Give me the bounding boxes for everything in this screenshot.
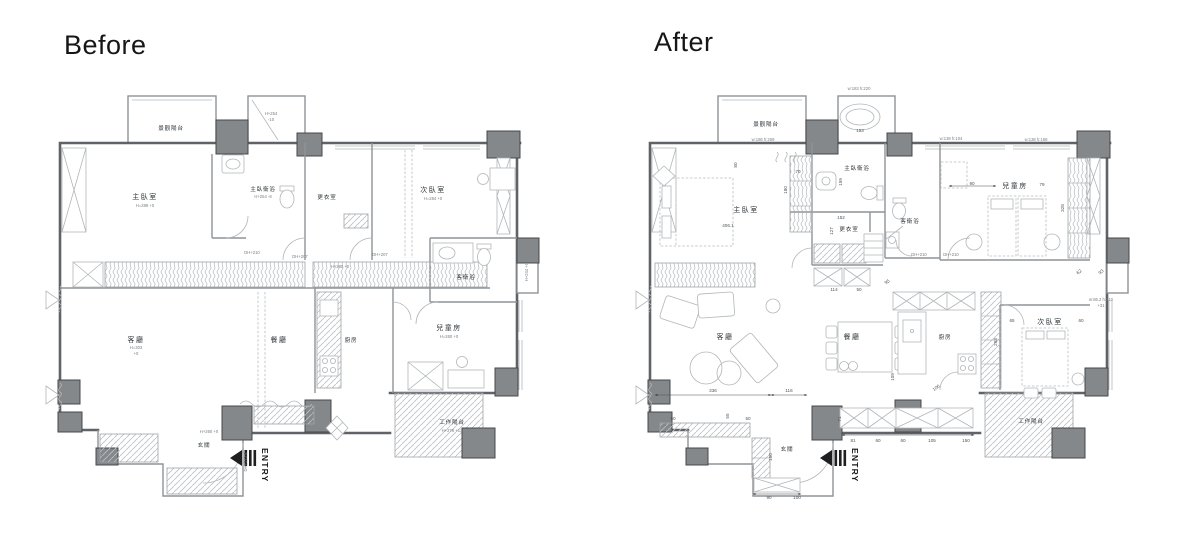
room-note: -10 <box>268 117 275 122</box>
window-note: +31 <box>1097 303 1105 308</box>
dim: 159 <box>838 178 843 186</box>
dressing-cabinets <box>814 234 883 263</box>
room-label-master-bath: 主臥衛浴 <box>844 164 870 172</box>
walkway-floor <box>254 406 314 424</box>
wardrobe-icon <box>408 362 443 390</box>
door-height-note: DH+213.5 <box>243 452 248 472</box>
floor-plan-before: 景觀陽台 主臥室 H=289 +0 主臥衛浴 H+254 -8 H+254 -1… <box>46 96 539 496</box>
dim: 50 <box>745 416 751 421</box>
dim: 50 <box>670 416 676 421</box>
room-label-dining: 餐廳 <box>844 332 861 341</box>
door-height-note: DH+210 <box>943 252 959 257</box>
room-label-work-balcony: 工作陽台 <box>439 418 465 426</box>
door-height-note: DH+207 <box>372 252 388 257</box>
dim: 55 <box>725 413 730 419</box>
room-label-work-balcony: 工作陽台 <box>1018 417 1044 425</box>
dim: 50 <box>856 287 862 292</box>
dim: 60 <box>1078 318 1084 323</box>
room-note: +0 <box>134 351 139 356</box>
dim: 62 <box>1075 268 1082 275</box>
room-note: H+260 +0 <box>200 429 219 434</box>
bathtub-icon <box>840 104 880 130</box>
room-label-master-bath: 主臥衛浴 <box>250 185 276 193</box>
chair-icon <box>1042 388 1056 398</box>
tv-cabinet <box>660 423 750 437</box>
dresser-icon <box>344 214 368 228</box>
entry-cabinet-row <box>840 408 973 428</box>
dim: 79 <box>1039 182 1045 187</box>
window-note: w:183 h:220 <box>848 86 871 91</box>
toilet-icon <box>477 244 491 266</box>
bed-icon <box>1022 328 1068 386</box>
room-label-guest-bath: 客衛浴 <box>456 273 475 281</box>
dim: 100 <box>793 495 801 500</box>
dim: 70 <box>795 169 801 174</box>
room-label-view-balcony: 景觀陽台 <box>158 124 184 132</box>
dim: 93 <box>1097 268 1104 275</box>
room-label-living: 客廳 <box>717 332 734 341</box>
toilet-icon <box>861 186 883 200</box>
bed-icon <box>988 196 1016 256</box>
rug-icon <box>690 352 722 384</box>
room-label-dressing: 更衣室 <box>839 225 858 233</box>
door-height-note: DH+207 <box>292 254 308 259</box>
stool-icon <box>966 234 982 250</box>
sink-icon <box>816 172 836 190</box>
wardrobe-row <box>655 263 755 287</box>
sink-icon <box>222 155 244 173</box>
room-label-foyer: 玄關 <box>781 445 794 453</box>
dim: 153 <box>856 128 864 133</box>
room-label-dining: 餐廳 <box>271 335 288 344</box>
dining-table-icon <box>826 322 906 372</box>
kitchen-island <box>898 312 926 374</box>
dim: 150 <box>768 453 773 461</box>
vanity-icon <box>433 243 473 263</box>
room-note: H+280 +0 <box>331 264 350 269</box>
toilet-icon <box>280 186 294 208</box>
dim: 152 <box>837 215 845 220</box>
desk-icon <box>941 162 967 188</box>
room-note: H+254 -8 <box>254 194 272 199</box>
desk-icon <box>448 357 484 389</box>
room-note: H=284 +0 <box>424 196 443 201</box>
room-note: H+244 +0 <box>524 262 529 281</box>
foyer-floor <box>167 468 237 494</box>
room-label-view-balcony: 景觀陽台 <box>753 120 779 128</box>
window-note: w:86.2 h:210 <box>1089 297 1114 302</box>
dim: 81 <box>850 438 856 443</box>
room-label-kids: 兒童房 <box>1002 181 1028 190</box>
dim: 406.1 <box>722 223 734 228</box>
room-label-living: 客廳 <box>128 335 145 344</box>
page: Before After <box>0 0 1200 544</box>
room-note: H+278 +13 <box>442 428 463 433</box>
rug-icon <box>717 361 741 385</box>
window-note: w:138 h:168 <box>1025 137 1048 142</box>
window-note: w:138 h:104 <box>940 136 963 141</box>
dim: 106 <box>932 383 942 392</box>
stool-icon <box>1072 373 1084 385</box>
wardrobe-icon <box>790 156 812 232</box>
dim: 293 <box>993 338 998 346</box>
dim: 127 <box>829 227 834 235</box>
dim: 65 <box>1009 318 1015 323</box>
floor-plans-drawing: ENTRY <box>0 0 1200 544</box>
room-label-bedroom2: 次臥室 <box>1037 317 1063 326</box>
desk-icon <box>478 168 516 190</box>
door-height-note: DH+210 <box>244 250 260 255</box>
bed-icon <box>1018 196 1046 256</box>
room-label-guest-bath: 客衛浴 <box>900 217 919 225</box>
dim: 71 <box>837 416 842 422</box>
stove-icon <box>958 354 976 374</box>
room-label-foyer: 玄關 <box>198 441 211 449</box>
dim: 60 <box>900 438 906 443</box>
room-label-master-bedroom: 主臥室 <box>733 205 759 214</box>
dim: 336 <box>709 388 717 393</box>
room-label-kitchen: 廚房 <box>939 333 952 341</box>
chair-icon <box>1024 388 1038 398</box>
kitchen-counter <box>317 292 341 388</box>
dim: 90 <box>766 495 772 500</box>
dim: 105 <box>928 438 936 443</box>
room-note: H=289 +0 <box>136 203 155 208</box>
room-label-kids: 兒童房 <box>436 323 462 332</box>
floor-plan-after: 景觀陽台 w:186 h:269 主臥室 406.1 主臥衛浴 更衣室 客衛浴 … <box>636 86 1129 500</box>
room-label-kitchen: 廚房 <box>345 336 358 344</box>
window-note: w:186 h:269 <box>752 137 775 142</box>
dim: 95 <box>884 278 891 285</box>
dim: 80 <box>733 162 738 168</box>
dim: 328 <box>1060 204 1065 212</box>
balcony-floor <box>100 434 158 462</box>
door-height-note: DH+210 <box>911 252 927 257</box>
dim: 60 <box>875 438 881 443</box>
room-label-dressing: 更衣室 <box>317 193 336 201</box>
dim: 114 <box>830 287 838 292</box>
room-note: H+254 <box>265 111 278 116</box>
bench-cabinet <box>814 268 870 286</box>
toilet-icon <box>893 198 907 219</box>
room-note: H=303 <box>130 345 143 350</box>
dim: 90 <box>969 181 975 186</box>
dim: 150 <box>962 438 970 443</box>
room-label-bedroom2: 次臥室 <box>420 185 446 194</box>
dim: 116 <box>785 388 793 393</box>
wardrobe-row <box>73 262 487 287</box>
room-note: H=260 +0 <box>440 334 459 339</box>
room-label-master-bedroom: 主臥室 <box>132 192 158 201</box>
dim: 109 <box>890 373 895 381</box>
dim: 180 <box>783 186 788 194</box>
